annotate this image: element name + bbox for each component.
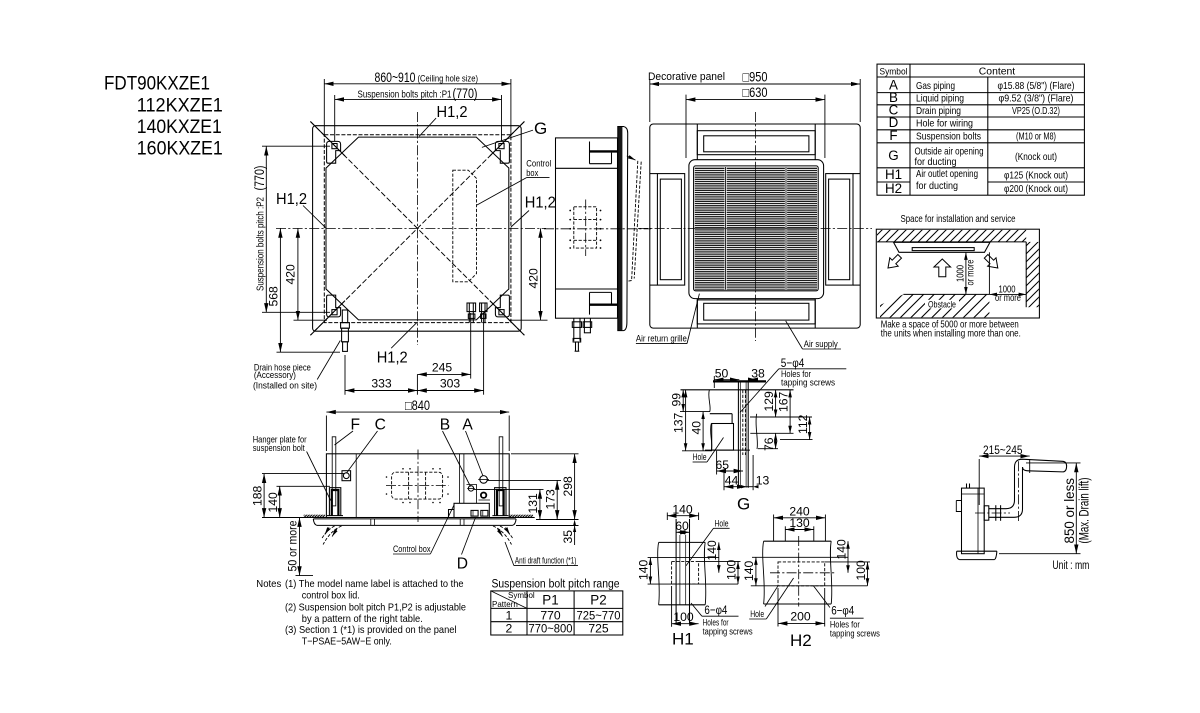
svg-text:420: 420	[284, 264, 298, 285]
svg-text:D: D	[457, 556, 468, 573]
svg-text:Content: Content	[979, 67, 1016, 78]
svg-text:(Knock out): (Knock out)	[1015, 152, 1057, 163]
svg-text:568: 568	[267, 286, 281, 307]
svg-text:725~770: 725~770	[577, 608, 621, 622]
svg-text:129: 129	[762, 391, 776, 412]
svg-text:770: 770	[540, 608, 561, 622]
svg-text:Drain piping: Drain piping	[916, 106, 961, 117]
svg-text:130: 130	[789, 516, 810, 530]
svg-text:(Max. Drain lift): (Max. Drain lift)	[1076, 478, 1091, 544]
svg-text:Anti draft function (*1): Anti draft function (*1)	[515, 555, 577, 566]
svg-text:Control box: Control box	[393, 544, 431, 555]
svg-text:Gas piping: Gas piping	[916, 81, 955, 92]
svg-text:Air supply: Air supply	[804, 339, 838, 350]
svg-text:for ducting: for ducting	[915, 157, 957, 168]
svg-text:H1,2: H1,2	[437, 104, 468, 121]
svg-text:Suspension bolts pitch :P2: Suspension bolts pitch :P2	[256, 197, 267, 291]
svg-text:φ15.88 (5/8") (Flare): φ15.88 (5/8") (Flare)	[998, 81, 1075, 92]
svg-text:Notes: Notes	[256, 579, 281, 590]
svg-text:or more: or more	[966, 259, 977, 285]
svg-text:Liquid piping: Liquid piping	[916, 94, 964, 105]
svg-text:Symbol: Symbol	[508, 591, 535, 600]
svg-text:Obstacle: Obstacle	[928, 299, 956, 310]
svg-text:(M10 or M8): (M10 or M8)	[1016, 131, 1056, 142]
svg-text:140KXZE1: 140KXZE1	[137, 116, 222, 138]
svg-text:13: 13	[756, 473, 770, 487]
svg-text:(2) Suspension bolt pitch P1,P: (2) Suspension bolt pitch P1,P2 is adjus…	[285, 602, 466, 613]
svg-text:VP25 (O.D.32): VP25 (O.D.32)	[1012, 106, 1060, 117]
svg-text:99: 99	[670, 393, 684, 407]
svg-text:H1,2: H1,2	[276, 191, 307, 208]
svg-text:box: box	[526, 168, 538, 179]
svg-text:140: 140	[834, 539, 848, 560]
svg-text:65: 65	[716, 458, 730, 472]
svg-text:188: 188	[250, 485, 264, 506]
svg-text:H2: H2	[790, 631, 812, 650]
svg-text:Unit : mm: Unit : mm	[1052, 558, 1089, 572]
svg-text:100: 100	[724, 559, 738, 580]
svg-text:112KXZE1: 112KXZE1	[137, 95, 223, 117]
svg-text:60: 60	[675, 519, 689, 533]
svg-text:850 or less: 850 or less	[1062, 478, 1077, 544]
svg-text:B: B	[440, 416, 450, 433]
svg-text:φ9.52 (3/8") (Flare): φ9.52 (3/8") (Flare)	[999, 94, 1074, 105]
svg-text:50 or more: 50 or more	[286, 520, 300, 571]
svg-text:FDT90KXZE1: FDT90KXZE1	[104, 73, 210, 95]
svg-text:P1: P1	[542, 592, 558, 607]
svg-text:140: 140	[672, 502, 693, 516]
svg-text:tapping screws: tapping screws	[781, 377, 835, 388]
svg-text:φ200 (Knock out): φ200 (Knock out)	[1004, 184, 1068, 195]
svg-text:or more: or more	[995, 293, 1021, 304]
svg-text:770~800: 770~800	[529, 622, 573, 636]
svg-text:137: 137	[671, 412, 685, 433]
svg-text:F: F	[889, 128, 897, 143]
svg-text:tapping screws: tapping screws	[703, 627, 753, 638]
svg-text:Hole: Hole	[693, 452, 707, 463]
svg-text:□630: □630	[743, 85, 768, 100]
svg-text:Space for installation and ser: Space for installation and service	[901, 214, 1016, 225]
svg-text:860~910: 860~910	[375, 70, 416, 85]
svg-text:5−φ4: 5−φ4	[781, 356, 805, 370]
svg-text:Decorative panel: Decorative panel	[648, 71, 725, 83]
svg-text:100: 100	[673, 610, 694, 624]
svg-text:38: 38	[751, 367, 765, 381]
svg-text:H2: H2	[885, 181, 902, 196]
svg-text:H1: H1	[672, 630, 694, 649]
svg-text:200: 200	[790, 609, 811, 623]
svg-text:(3) Section 1 (*1) is provided: (3) Section 1 (*1) is provided on the pa…	[285, 625, 457, 636]
svg-text:tapping screws: tapping screws	[830, 628, 880, 639]
svg-text:P2: P2	[590, 592, 606, 607]
svg-text:298: 298	[561, 476, 575, 497]
svg-text:(Installed on site): (Installed on site)	[253, 381, 317, 392]
svg-text:Hole for wiring: Hole for wiring	[916, 118, 973, 129]
svg-text:131: 131	[526, 493, 540, 514]
svg-text:44: 44	[725, 473, 739, 487]
svg-text:50: 50	[715, 367, 729, 381]
svg-text:420: 420	[527, 268, 541, 289]
svg-text:140: 140	[266, 492, 280, 513]
svg-text:(1) The model name label is at: (1) The model name label is attached to …	[285, 579, 464, 590]
svg-text:6−φ4: 6−φ4	[704, 603, 727, 617]
svg-text:140: 140	[636, 559, 650, 580]
svg-text:1: 1	[506, 608, 513, 622]
svg-text:G: G	[737, 495, 750, 514]
svg-text:(770): (770)	[252, 166, 267, 191]
svg-text:160KXZE1: 160KXZE1	[137, 138, 223, 160]
svg-text:333: 333	[371, 377, 392, 391]
svg-text:140: 140	[742, 560, 756, 581]
svg-text:for ducting: for ducting	[916, 181, 958, 192]
svg-text:G: G	[888, 148, 898, 163]
svg-text:Symbol: Symbol	[880, 66, 908, 77]
svg-text:H1,2: H1,2	[525, 194, 556, 211]
svg-text:(Accessory): (Accessory)	[254, 370, 296, 381]
svg-text:the units when installing more: the units when installing more than one.	[881, 328, 1021, 339]
svg-text:suspension bolt: suspension bolt	[253, 443, 305, 454]
svg-text:φ125 (Knock out): φ125 (Knock out)	[1004, 171, 1068, 182]
svg-text:A: A	[462, 416, 473, 433]
svg-text:Suspension bolts pitch :P1: Suspension bolts pitch :P1	[358, 89, 452, 100]
svg-text:Suspension bolts: Suspension bolts	[916, 131, 981, 142]
svg-text:Air outlet opening: Air outlet opening	[916, 169, 978, 180]
svg-text:F: F	[351, 416, 361, 433]
svg-text:40: 40	[689, 421, 703, 435]
svg-text:173: 173	[544, 489, 558, 510]
svg-text:T−PSAE−5AW−E only.: T−PSAE−5AW−E only.	[302, 637, 392, 648]
svg-text:725: 725	[588, 622, 609, 636]
svg-text:35: 35	[561, 530, 575, 544]
svg-text:Air return grille: Air return grille	[636, 333, 687, 344]
svg-text:control box lid.: control box lid.	[302, 590, 360, 601]
svg-text:Hole: Hole	[750, 609, 764, 620]
svg-text:G: G	[534, 119, 547, 138]
svg-text:6−φ4: 6−φ4	[831, 604, 854, 618]
svg-text:(Ceiling hole size): (Ceiling hole size)	[418, 74, 479, 85]
svg-text:303: 303	[440, 377, 461, 391]
svg-text:140: 140	[705, 540, 719, 561]
svg-text:□950: □950	[743, 69, 768, 84]
svg-text:112: 112	[796, 414, 810, 434]
svg-text:Suspension bolt pitch range: Suspension bolt pitch range	[492, 577, 620, 591]
svg-text:(770): (770)	[453, 86, 478, 101]
svg-text:245: 245	[432, 360, 453, 374]
svg-text:□840: □840	[405, 398, 430, 413]
svg-text:215~245: 215~245	[983, 443, 1023, 457]
svg-text:C: C	[375, 416, 386, 433]
svg-text:2: 2	[506, 622, 513, 636]
svg-text:100: 100	[854, 560, 868, 581]
svg-text:167: 167	[776, 391, 790, 412]
svg-text:by a pattern of the right tabl: by a pattern of the right table.	[302, 614, 423, 625]
svg-text:H1: H1	[885, 167, 902, 182]
svg-text:H1,2: H1,2	[377, 349, 408, 366]
